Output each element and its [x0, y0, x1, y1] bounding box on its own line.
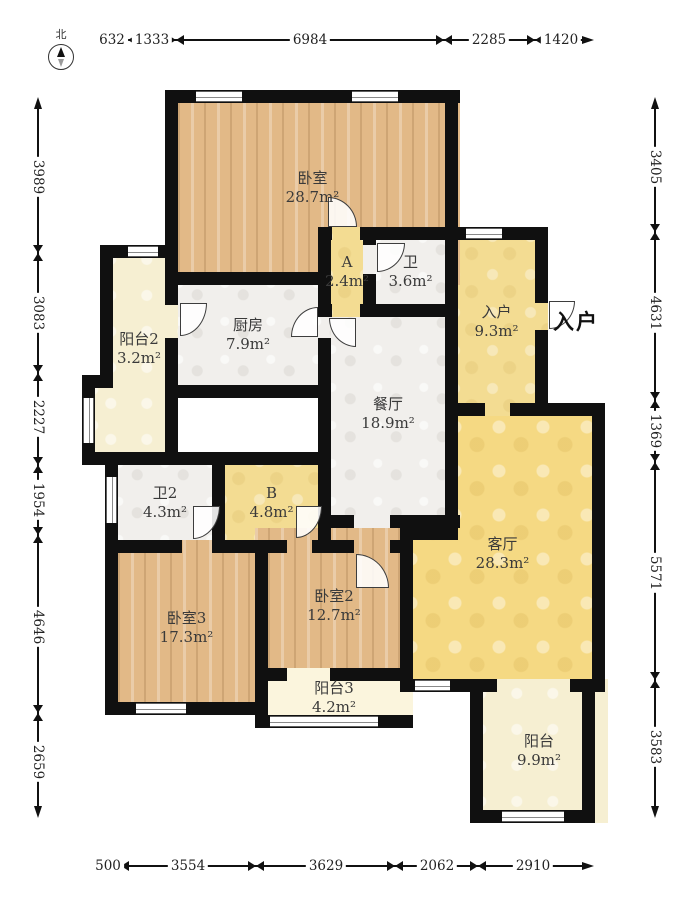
dim-label: 2285 [469, 32, 509, 48]
room-area: 18.9m² [361, 414, 415, 433]
dim-arrow [651, 97, 659, 109]
dim-label: 1420 [541, 32, 581, 48]
window [106, 477, 117, 523]
wall-segment [165, 398, 178, 452]
room-area: 12.7m² [307, 606, 361, 625]
wall-segment [105, 702, 268, 715]
dim-tick [650, 392, 660, 408]
dim-tick [470, 861, 486, 871]
wall-segment [445, 416, 458, 528]
window [270, 716, 378, 727]
dim-arrow [582, 36, 594, 44]
entry-callout-label: 入户 [553, 306, 599, 336]
dim-label: 3554 [168, 858, 208, 874]
dim-label: 4631 [647, 293, 663, 333]
room-area: 2.4m² [325, 272, 369, 291]
dim-tick [650, 454, 660, 470]
room-area: 9.3m² [474, 322, 518, 341]
wall-segment [255, 668, 287, 681]
compass-north-label: 北 [44, 26, 78, 42]
dim-label: 3405 [647, 147, 663, 187]
compass: 北 [44, 26, 78, 70]
dim-arrow [34, 97, 42, 109]
dim-label: 4646 [30, 607, 46, 647]
room-label: 客厅 [476, 535, 530, 554]
room-area: 28.7m² [286, 188, 340, 207]
dim-arrow [651, 806, 659, 818]
wall-segment [445, 90, 458, 240]
dim-label: 2227 [30, 397, 46, 437]
compass-icon [48, 44, 74, 70]
dim-tick [33, 457, 43, 473]
room-label: B [249, 484, 293, 503]
dim-label: 2062 [417, 858, 457, 874]
wall-segment [535, 240, 548, 303]
wall-segment [100, 245, 113, 388]
dim-tick [248, 861, 264, 871]
window [83, 398, 94, 443]
window [196, 91, 242, 102]
dim-label: 5571 [647, 553, 663, 593]
room-label: 卧室2 [307, 587, 361, 606]
room-area: 9.9m² [517, 751, 561, 770]
wall-segment [445, 227, 458, 416]
room-label: 餐厅 [361, 395, 415, 414]
window [415, 680, 450, 691]
dim-label: 3629 [306, 858, 346, 874]
room-label: 阳台3 [312, 679, 356, 698]
wall-segment [212, 452, 225, 553]
wall-segment [445, 403, 485, 416]
window [128, 246, 158, 257]
floor-plan: 北 客厅28.3m² 入户9.3m² 餐厅18.9m² 卧室28.7m² A2.… [0, 0, 690, 919]
room-label: 阳台2 [117, 330, 161, 349]
dim-label: 2910 [513, 858, 553, 874]
wall-segment [592, 403, 605, 692]
dim-tick [650, 224, 660, 240]
room-label: 卫2 [143, 484, 187, 503]
compass-needle-north-icon [57, 47, 65, 57]
window [502, 811, 564, 822]
room-area: 3.2m² [117, 349, 161, 368]
dim-label: 2659 [30, 742, 46, 782]
wall-segment [312, 540, 354, 553]
wall-segment [255, 540, 268, 715]
room-area: 4.8m² [249, 503, 293, 522]
room-label: A [325, 253, 369, 272]
wall-segment [510, 403, 605, 416]
room-bedroom3: 卧室317.3m² [105, 540, 268, 715]
dim-tick [33, 705, 43, 721]
room-area: 28.3m² [476, 554, 530, 573]
wall-segment [582, 679, 595, 823]
wall-segment [212, 540, 287, 553]
wall-segment [360, 304, 458, 317]
wall-segment [318, 304, 332, 317]
wall-segment [105, 540, 182, 553]
room-label: 入户 [474, 303, 518, 322]
room-area: 4.3m² [143, 503, 187, 522]
window [352, 91, 398, 102]
room-bath2: 卫24.3m² [105, 452, 225, 553]
room-area: 4.2m² [312, 698, 356, 717]
window [466, 228, 502, 239]
room-label: 阳台 [517, 732, 561, 751]
dim-label: 1369 [647, 411, 663, 451]
dim-label: 500 [92, 858, 124, 874]
wall-segment [165, 285, 178, 305]
wall-segment [82, 452, 331, 465]
window [136, 703, 186, 714]
compass-needle-south-icon [58, 59, 64, 67]
dim-tick [436, 35, 452, 45]
dim-label: 1333 [132, 32, 172, 48]
room-area: 7.9m² [226, 335, 270, 354]
dim-label: 6984 [290, 32, 330, 48]
dim-arrow [582, 862, 594, 870]
room-label: 厨房 [226, 316, 270, 335]
wall-segment [165, 272, 331, 285]
wall-segment [318, 515, 354, 528]
room-area: 17.3m² [160, 628, 214, 647]
dim-label: 3583 [647, 727, 663, 767]
dim-label: 632 [96, 32, 128, 48]
dim-tick [33, 245, 43, 261]
dim-label: 1954 [30, 480, 46, 520]
room-entry: 入户9.3m² [445, 227, 548, 416]
room-label: 卫 [388, 253, 432, 272]
dim-label: 3989 [30, 157, 46, 197]
room-label: 卧室 [286, 169, 340, 188]
wall-segment [470, 679, 483, 823]
room-label: 卧室3 [160, 609, 214, 628]
wall-segment [363, 227, 376, 245]
dim-tick [33, 365, 43, 381]
dim-label: 3083 [30, 293, 46, 333]
room-area: 3.6m² [388, 272, 432, 291]
dim-tick [650, 672, 660, 688]
dim-tick [33, 527, 43, 543]
dim-tick [387, 861, 403, 871]
dim-arrow [34, 806, 42, 818]
wall-segment [165, 385, 331, 398]
